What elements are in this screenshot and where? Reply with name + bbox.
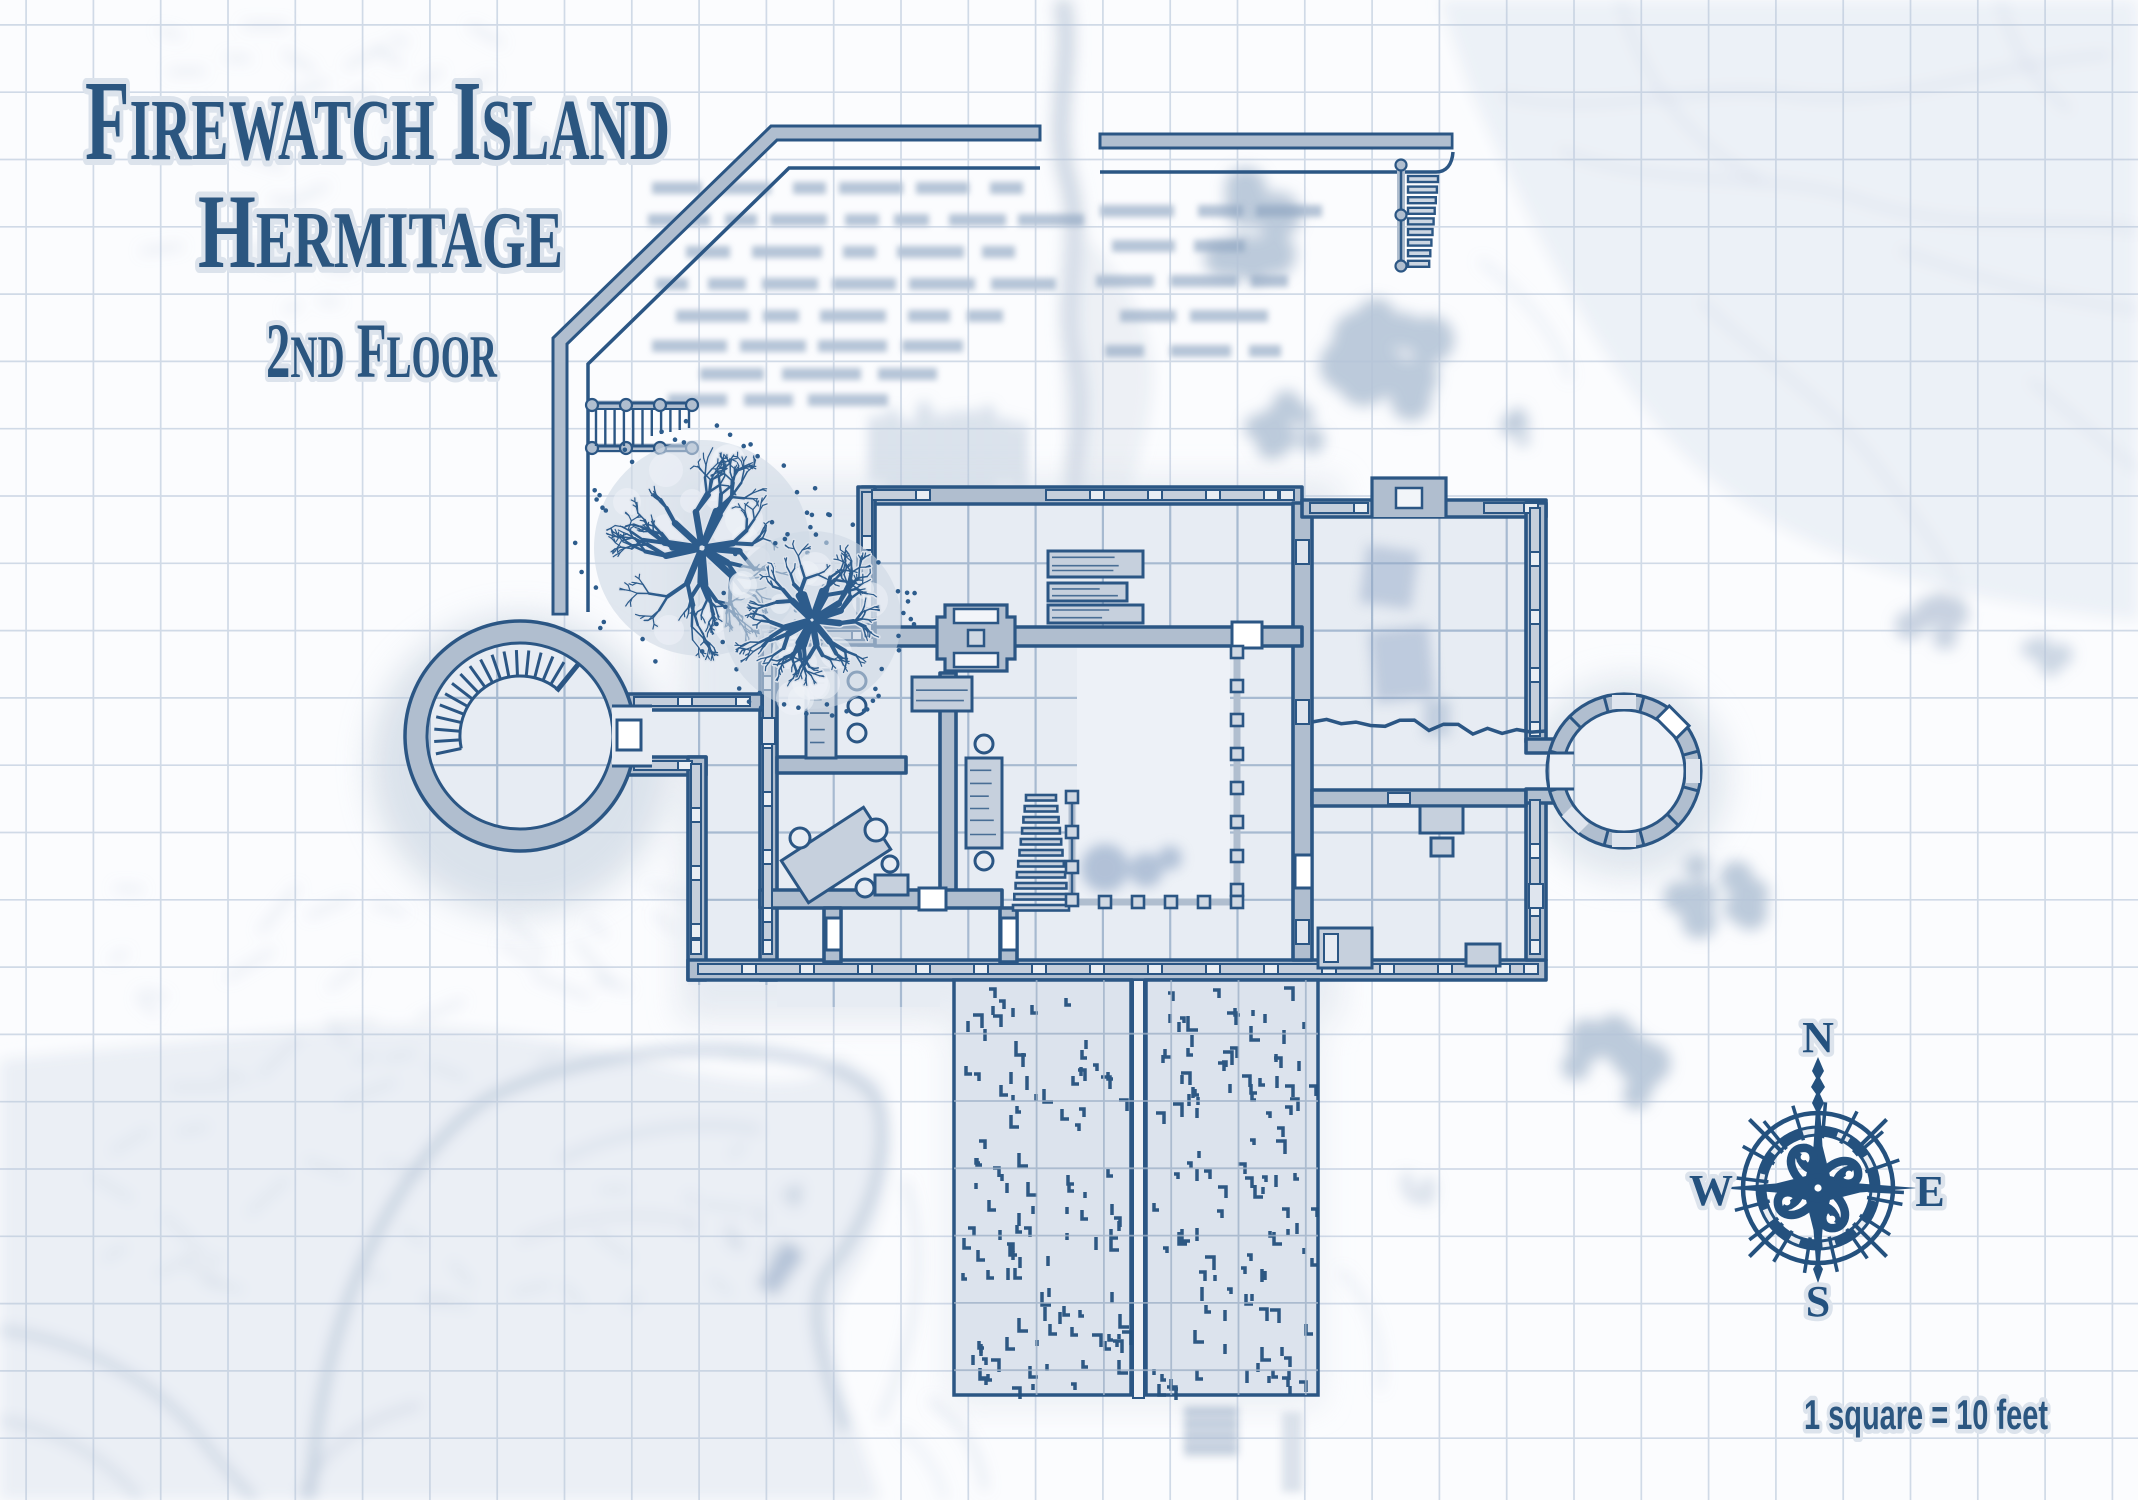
svg-text:W: W: [1689, 1166, 1733, 1215]
svg-text:1 square = 10 feet: 1 square = 10 feet: [1804, 1391, 2048, 1438]
svg-text:E: E: [1915, 1167, 1944, 1216]
svg-text:S: S: [1806, 1277, 1830, 1326]
svg-text:N: N: [1802, 1013, 1834, 1062]
